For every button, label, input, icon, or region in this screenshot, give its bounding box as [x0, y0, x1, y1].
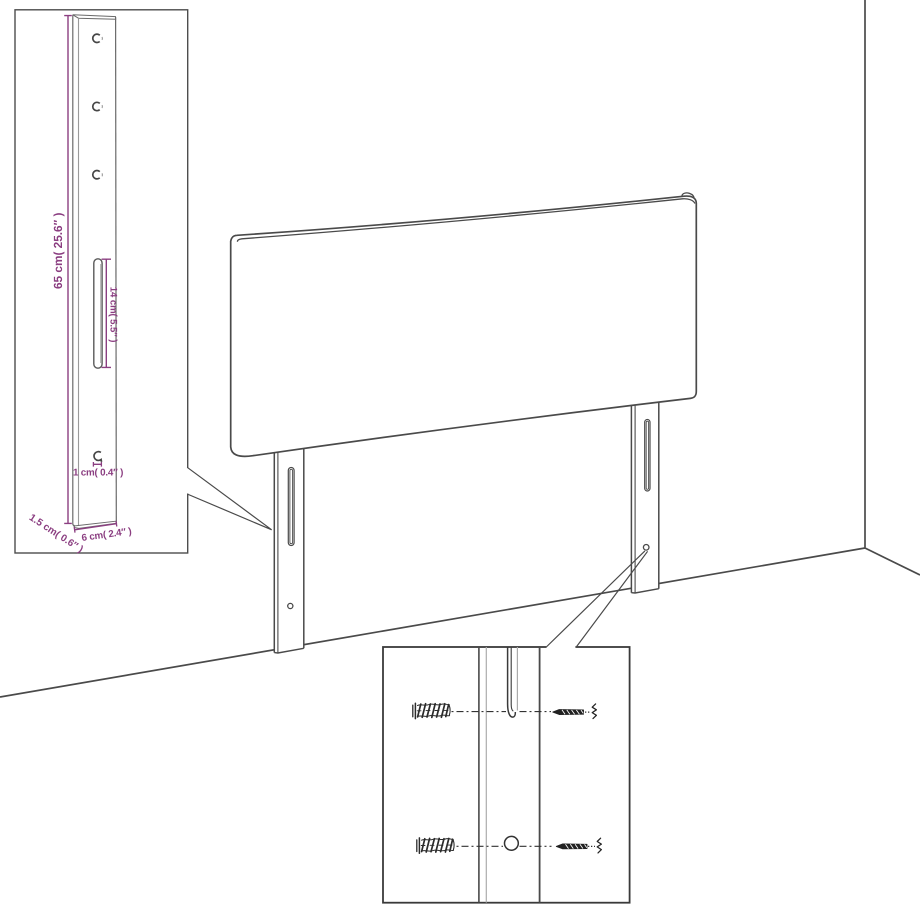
svg-text:65 cm( 25.6″ ): 65 cm( 25.6″ ) [51, 212, 65, 289]
svg-text:1 cm( 0.4″ ): 1 cm( 0.4″ ) [73, 468, 123, 479]
svg-text:14 cm( 5.5″ ): 14 cm( 5.5″ ) [108, 287, 119, 343]
